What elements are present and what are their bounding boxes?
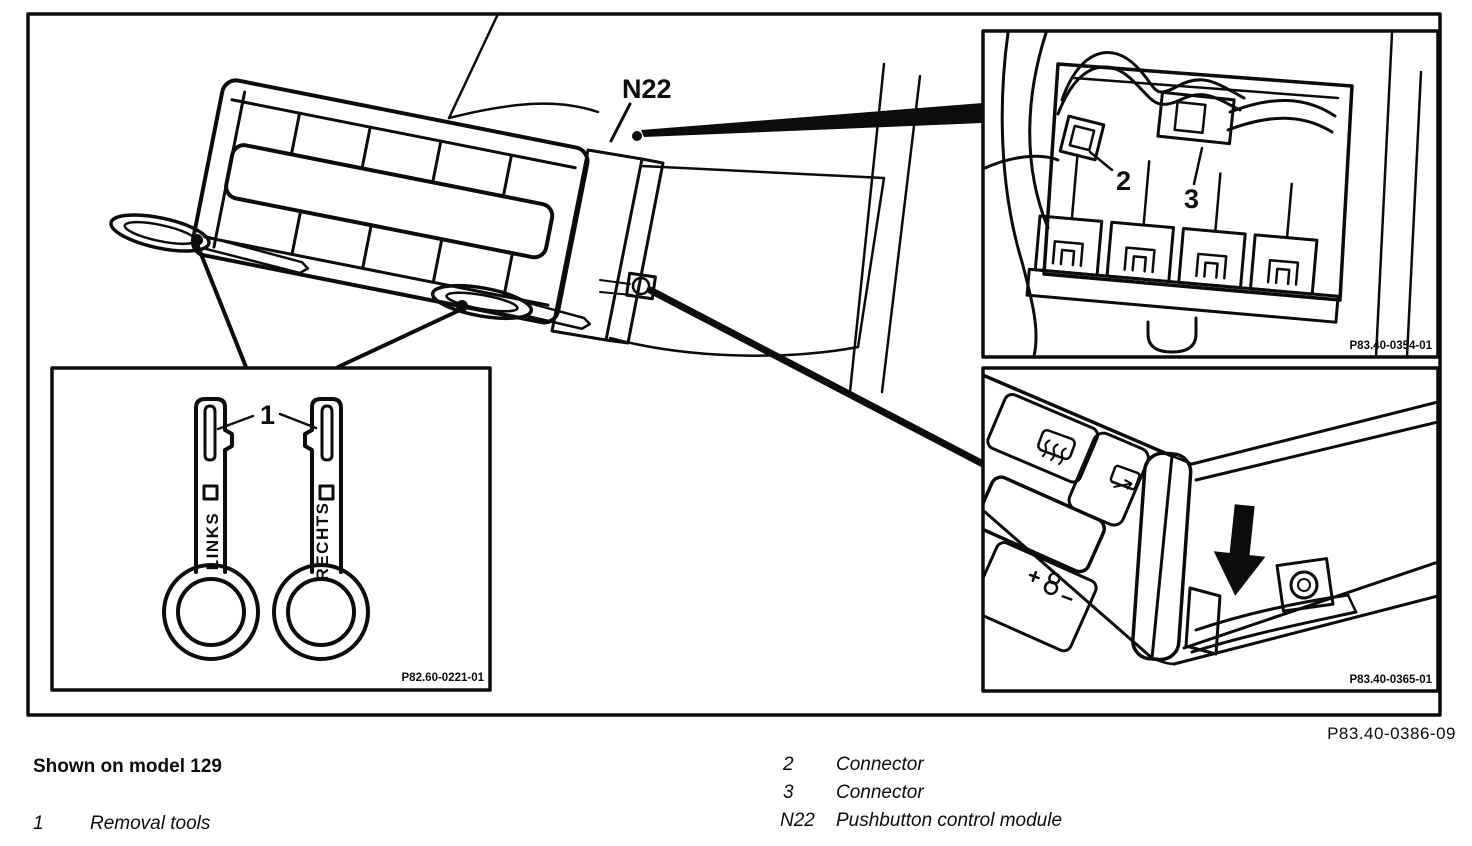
display-slot bbox=[224, 143, 554, 259]
manual-page: LINKS RECHTS 1 P82.60-0221-01 bbox=[0, 0, 1472, 846]
module-callout-label: N22 bbox=[622, 74, 672, 104]
legend-key: N22 bbox=[780, 810, 836, 832]
retaining-clip bbox=[627, 273, 656, 298]
figure-note: Shown on model 129 bbox=[33, 756, 222, 778]
callout-3-label: 3 bbox=[1184, 184, 1199, 214]
callout-2-label: 2 bbox=[1116, 166, 1131, 196]
legend-item-n22: N22Pushbutton control module bbox=[780, 810, 1062, 832]
tool-marking-links: LINKS bbox=[203, 512, 222, 571]
legend-label: Connector bbox=[836, 782, 924, 803]
tool-marking-rechts: RECHTS bbox=[313, 502, 332, 581]
removal-tool-inserted-left bbox=[108, 208, 312, 279]
callout-line-to-front-inset bbox=[650, 290, 983, 464]
connectors-inset-part-number: P83.40-0354-01 bbox=[1350, 340, 1433, 352]
leader-line-tool-bottom bbox=[338, 310, 460, 367]
callout-1-label: 1 bbox=[260, 400, 275, 430]
legend-key: 3 bbox=[783, 782, 836, 804]
legend-item-3: 3Connector bbox=[783, 782, 924, 804]
module-front-inset-part-number: P83.40-0365-01 bbox=[1350, 674, 1433, 686]
legend-label: Connector bbox=[836, 754, 924, 775]
leader-line-n22 bbox=[611, 104, 630, 141]
callout-line-to-connectors-inset bbox=[641, 103, 983, 137]
module-front-inset-box bbox=[983, 368, 1438, 691]
legend-key: 1 bbox=[33, 813, 90, 835]
legend-label: Pushbutton control module bbox=[836, 810, 1062, 831]
legend-label: Removal tools bbox=[90, 813, 210, 834]
figure-number: P83.40-0386-09 bbox=[1306, 724, 1456, 744]
legend-key: 2 bbox=[783, 754, 836, 776]
legend-item-1: 1Removal tools bbox=[33, 813, 210, 835]
tools-inset-part-number: P82.60-0221-01 bbox=[402, 672, 485, 684]
legend-item-2: 2Connector bbox=[783, 754, 924, 776]
figure-artwork: LINKS RECHTS 1 P82.60-0221-01 bbox=[0, 0, 1472, 846]
